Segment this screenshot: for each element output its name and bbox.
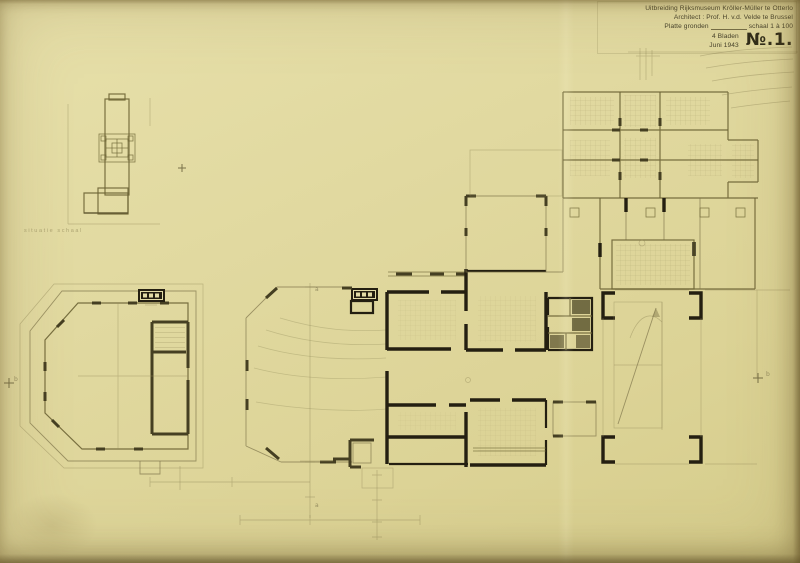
title-block: Uitbreiding Rijksmuseum Kröller-Müller t…	[597, 1, 797, 54]
architect-line: Architect : Prof. H. v.d. Velde te Bruss…	[601, 13, 793, 22]
left-building	[20, 284, 203, 474]
paper-stain	[8, 493, 98, 557]
floorplan-drawing: a a b b	[0, 0, 800, 563]
sheets-date-column: 4 Bladen Juni 1943	[709, 32, 739, 50]
stair-hall	[603, 290, 701, 464]
paper-edge-bottom	[0, 554, 800, 563]
date-label: Juni 1943	[709, 41, 739, 50]
north-wing	[546, 92, 758, 289]
paper-fold	[558, 0, 574, 563]
drawing-sheet: a a b b Uitbreiding Rijksmuseum Kröller-…	[0, 0, 800, 563]
dimension-marks: a a b b	[4, 286, 790, 540]
central-hall	[246, 283, 393, 518]
section-letter-a-top: a	[315, 286, 319, 293]
section-letter-b-right: b	[766, 371, 770, 378]
project-title: Uitbreiding Rijksmuseum Kröller-Müller t…	[601, 4, 793, 13]
section-marker-boxes	[138, 288, 378, 313]
title-block-bottom: 4 Bladen Juni 1943 №.1.	[601, 32, 793, 50]
section-letter-b-left: b	[14, 376, 18, 383]
section-letter-a-bottom: a	[315, 502, 319, 509]
drawing-type-label: Platte gronden	[664, 22, 708, 31]
sheet-number: №.1.	[746, 32, 793, 49]
site-plan-caption: situatie schaal	[24, 228, 83, 234]
paper-edge-top	[0, 0, 800, 4]
leader-line	[711, 29, 747, 30]
north-west-room	[466, 150, 562, 272]
sheets-count: 4 Bladen	[709, 32, 739, 41]
paper-edge-right	[793, 0, 800, 563]
marker-box-left	[138, 289, 165, 302]
marker-box-right	[351, 288, 378, 313]
site-plan-mini	[68, 94, 186, 224]
